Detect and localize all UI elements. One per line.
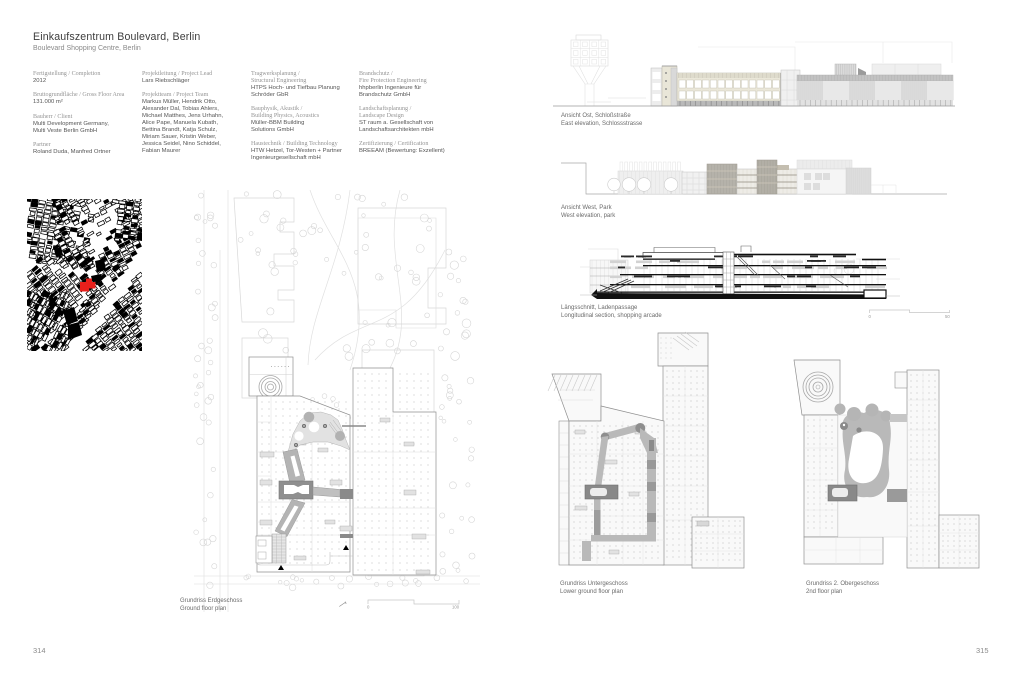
svg-text:50: 50: [945, 314, 950, 319]
svg-text:0: 0: [869, 314, 872, 319]
svg-text:0: 0: [367, 605, 370, 610]
svg-text:100: 100: [452, 605, 460, 610]
